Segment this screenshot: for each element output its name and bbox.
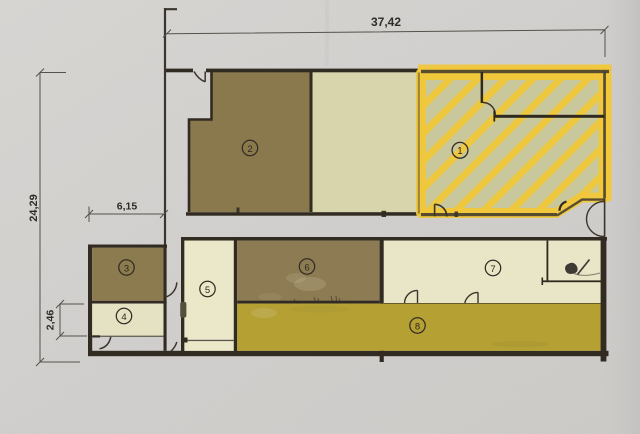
svg-text:5: 5 — [205, 285, 210, 296]
svg-text:2: 2 — [247, 144, 252, 155]
svg-text:37,42: 37,42 — [371, 15, 401, 29]
svg-text:8: 8 — [415, 321, 420, 332]
svg-text:7: 7 — [490, 264, 495, 275]
svg-text:6,15: 6,15 — [117, 201, 138, 213]
svg-text:1: 1 — [457, 146, 462, 157]
svg-text:2,46: 2,46 — [45, 310, 57, 331]
svg-text:3: 3 — [124, 263, 129, 274]
svg-text:24,29: 24,29 — [28, 194, 40, 222]
svg-text:4: 4 — [121, 312, 126, 323]
svg-text:6: 6 — [304, 262, 309, 273]
